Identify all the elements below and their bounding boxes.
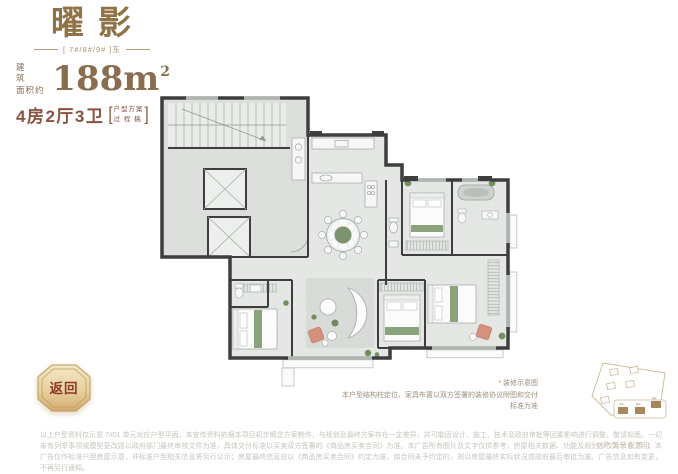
plan-note-line2: 本户型结构柱定位、家具布置以双方签署的装修协议附图和交付标准为准 — [340, 390, 538, 413]
rooms-label: 4房2厅3卫 — [16, 102, 104, 127]
floor-plan-image — [140, 85, 540, 395]
dining-table — [318, 210, 367, 259]
subtitle-text: [ 7#/8#/9# ]东 — [63, 44, 121, 55]
subtitle-divider-left — [34, 49, 58, 50]
site-plan-label-7: 7# — [619, 402, 624, 407]
plan-note: * 装修示意图 本户型结构柱定位、家具布置以双方签署的装修协议附图和交付标准为准 — [340, 378, 538, 413]
back-button[interactable]: 返回 — [36, 363, 92, 413]
area-label: 建 筑 面积约 — [16, 62, 47, 96]
site-plan-label-9: 9# — [652, 396, 657, 401]
living-room — [306, 278, 374, 348]
staircase — [168, 103, 286, 147]
plan-note-line1: * 装修示意图 — [340, 378, 538, 390]
subtitle: [ 7#/8#/9# ]东 — [14, 44, 170, 55]
site-plan-label-8: 8# — [636, 402, 641, 407]
back-button-label: 返回 — [50, 381, 79, 396]
bedroom-top-right — [406, 193, 448, 250]
site-plan-diagram: 7# 8# 9# — [574, 358, 670, 430]
floor-plan — [140, 85, 540, 395]
subtitle-divider-right — [126, 49, 150, 50]
page: { "header": { "title": "曜影", "subtitle":… — [0, 0, 678, 461]
disclaimer-text: 以上户型资料仅示意 7#01 单元对应户型平面，本宣传资料依据本项目初步概念方案… — [40, 431, 662, 474]
page-title: 曜影 — [14, 4, 170, 42]
